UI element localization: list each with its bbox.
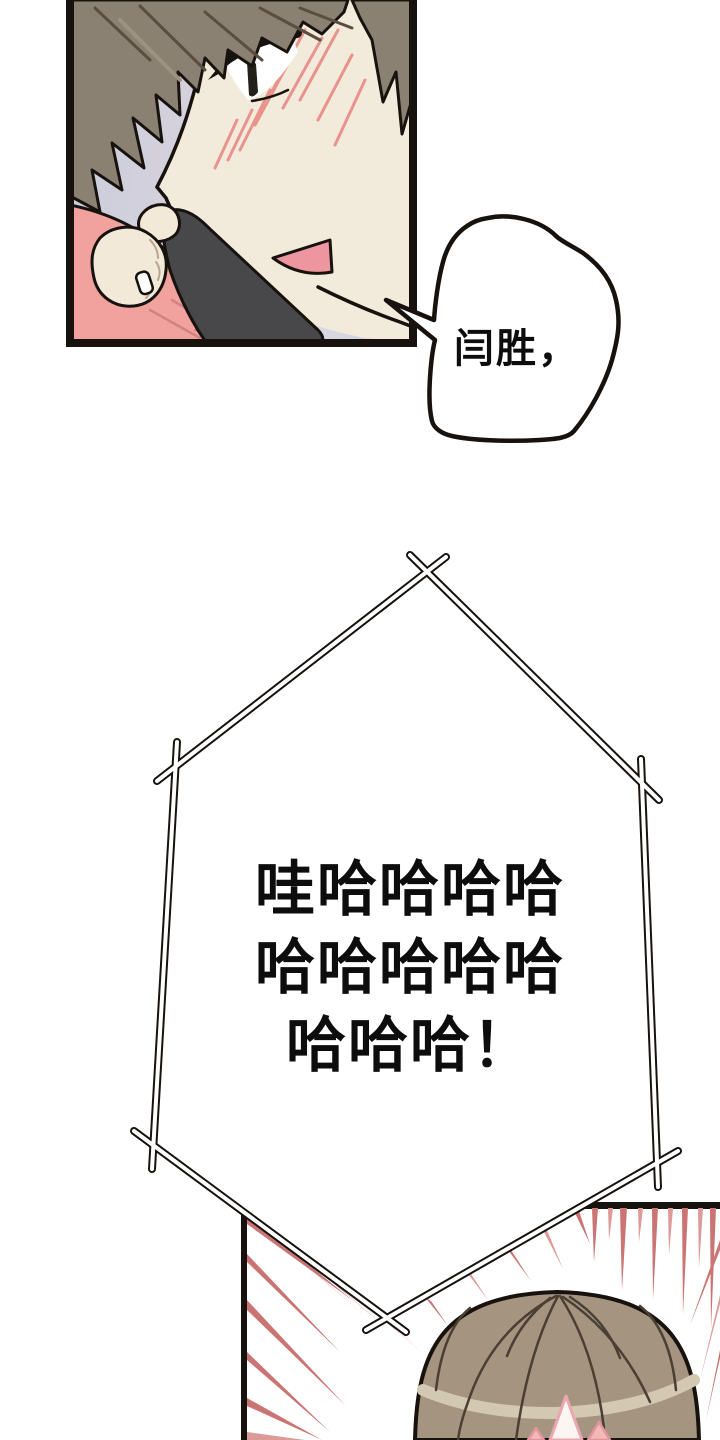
phone-bubble-text: 闫胜， — [454, 316, 580, 374]
bottom-panel-border-left — [241, 1202, 247, 1440]
top-panel-phone-call — [70, 0, 413, 347]
comic-page: 闫胜， 哇哈哈哈哈 哈哈哈哈哈 哈哈哈！ — [0, 0, 720, 1440]
laugh-line-2: 哈哈哈哈哈 — [255, 929, 565, 1007]
laugh-line-3: 哈哈哈！ — [255, 1007, 565, 1085]
fist — [92, 227, 166, 306]
laugh-burst-text: 哇哈哈哈哈 哈哈哈哈哈 哈哈哈！ — [255, 851, 565, 1085]
comic-artwork — [0, 0, 720, 1440]
character-head — [415, 1292, 699, 1440]
laugh-line-1: 哇哈哈哈哈 — [255, 851, 565, 929]
